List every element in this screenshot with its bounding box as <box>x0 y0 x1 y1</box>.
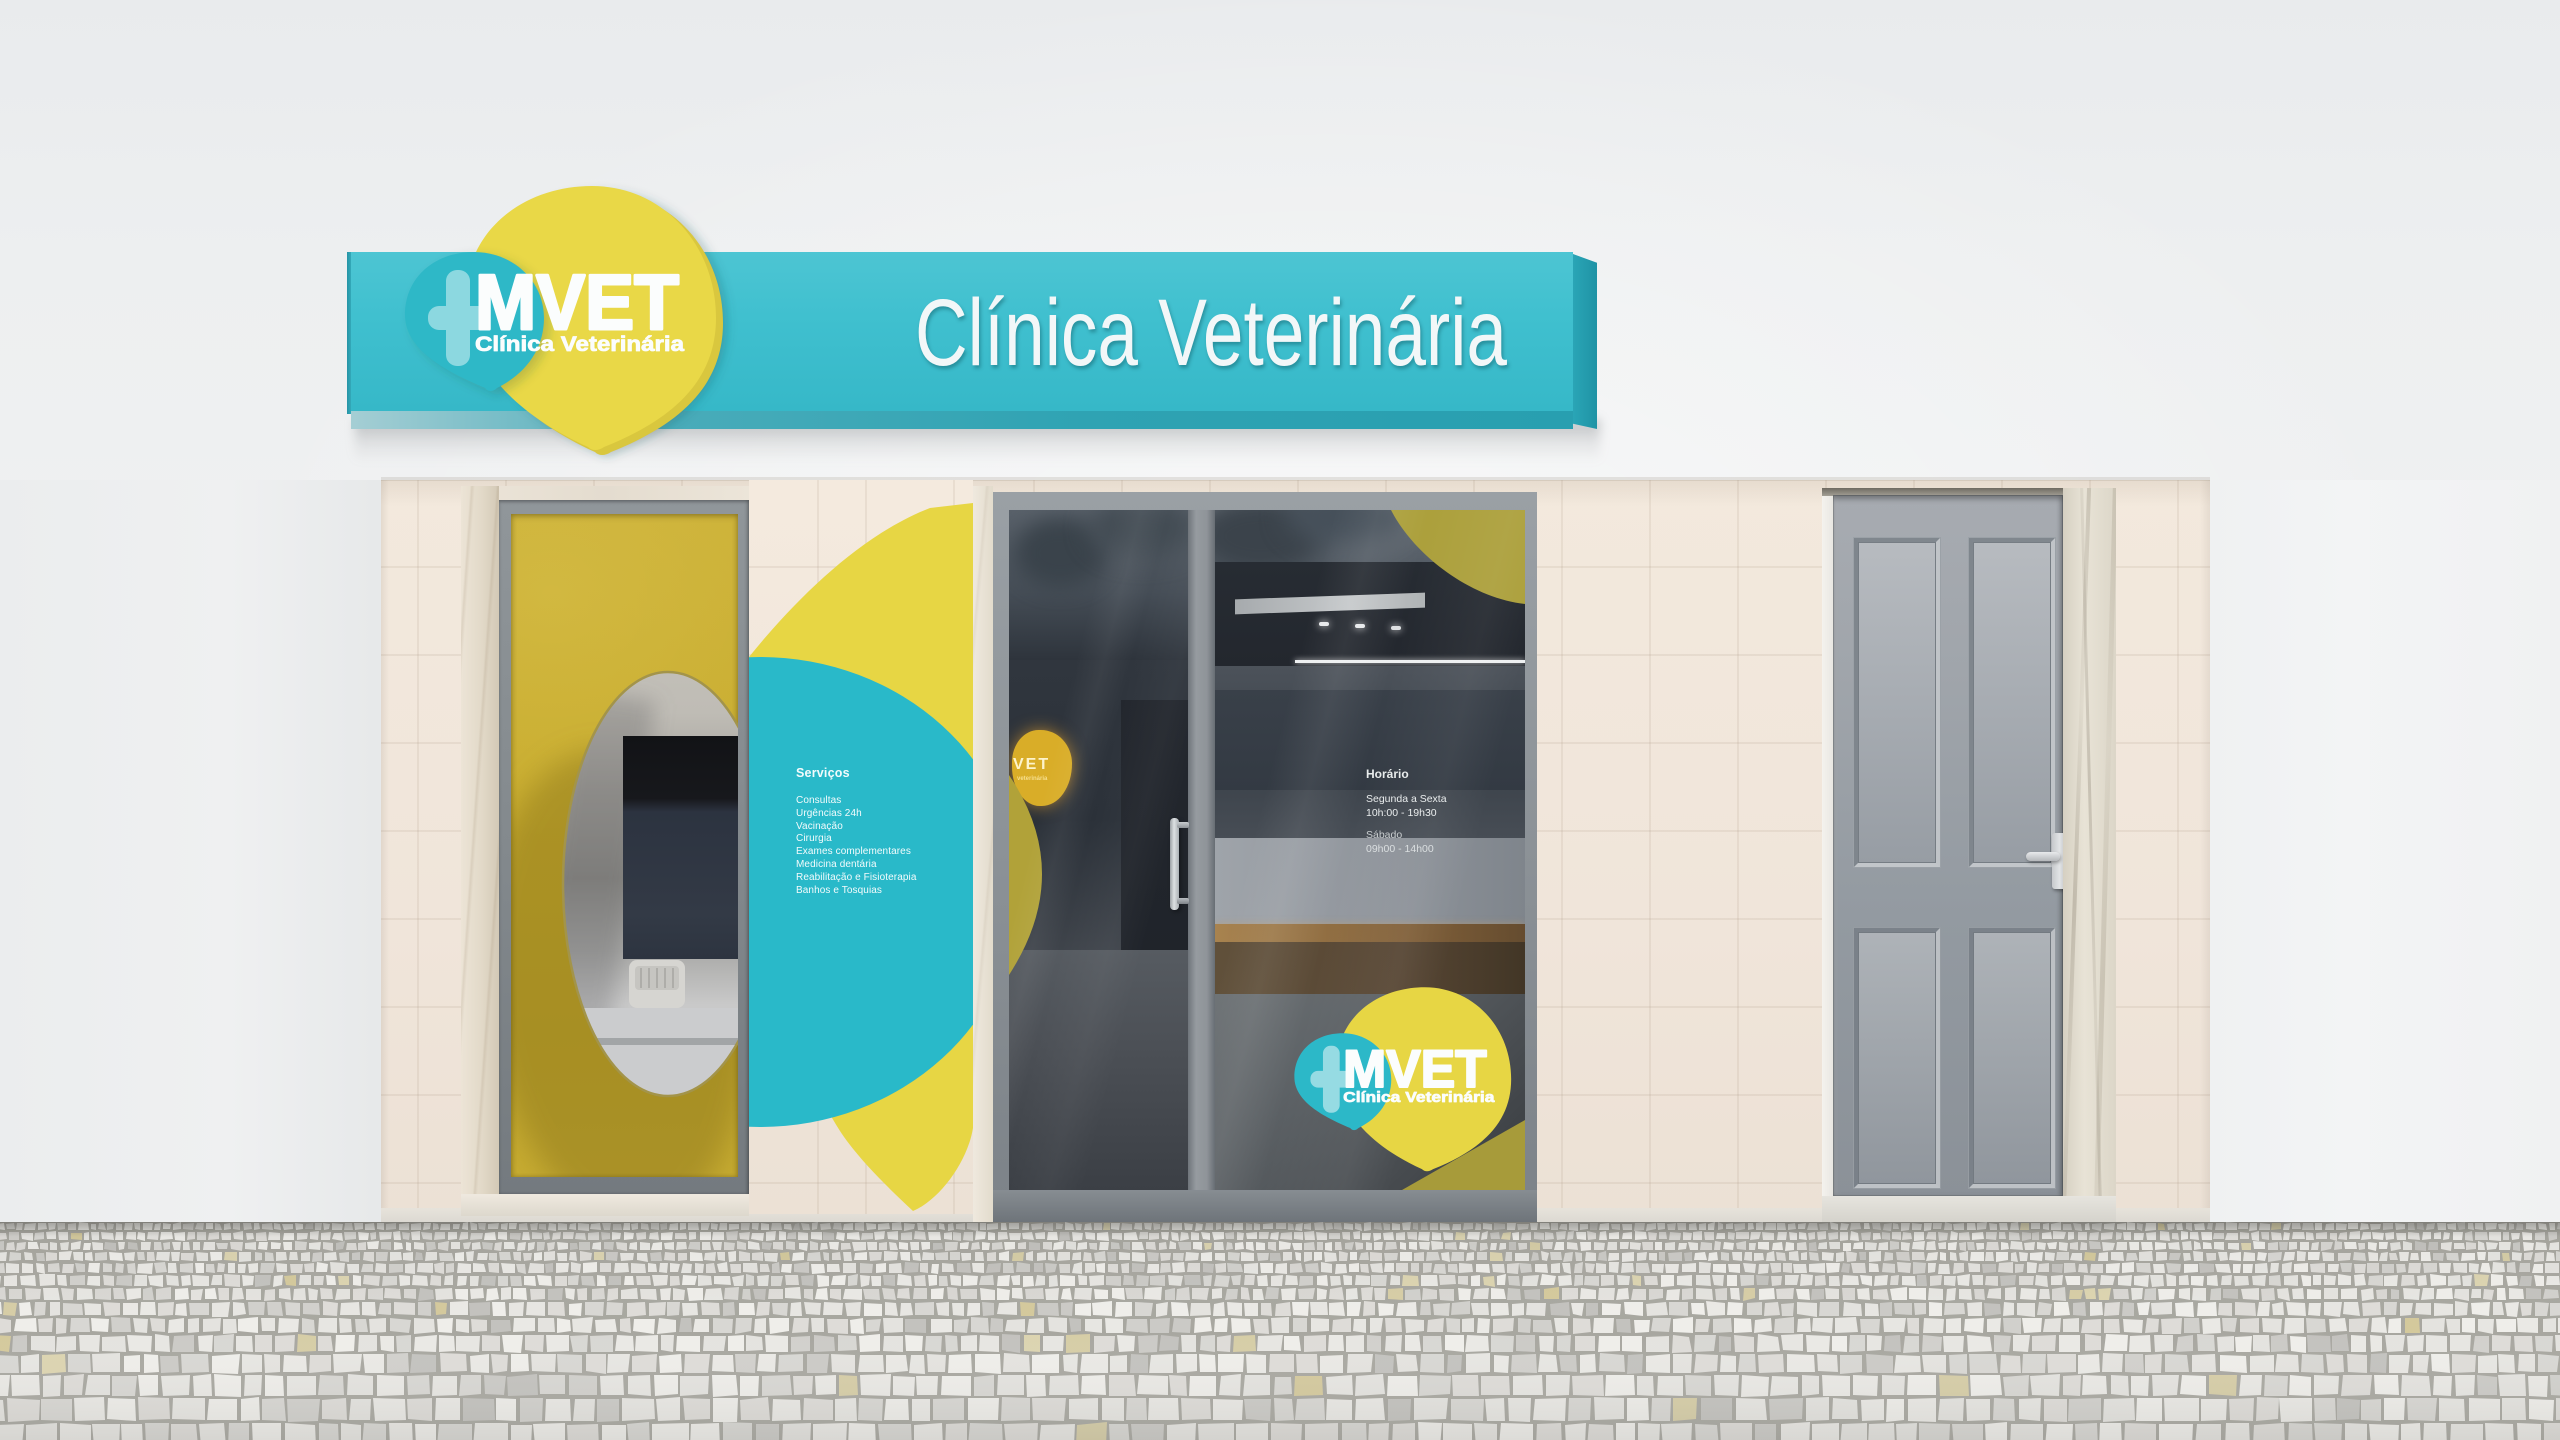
svg-text:Clínica Veterinária: Clínica Veterinária <box>915 280 1507 386</box>
svg-text:Clínica Veterinária: Clínica Veterinária <box>1343 1090 1495 1106</box>
svg-text:Clínica Veterinária: Clínica Veterinária <box>475 333 684 356</box>
